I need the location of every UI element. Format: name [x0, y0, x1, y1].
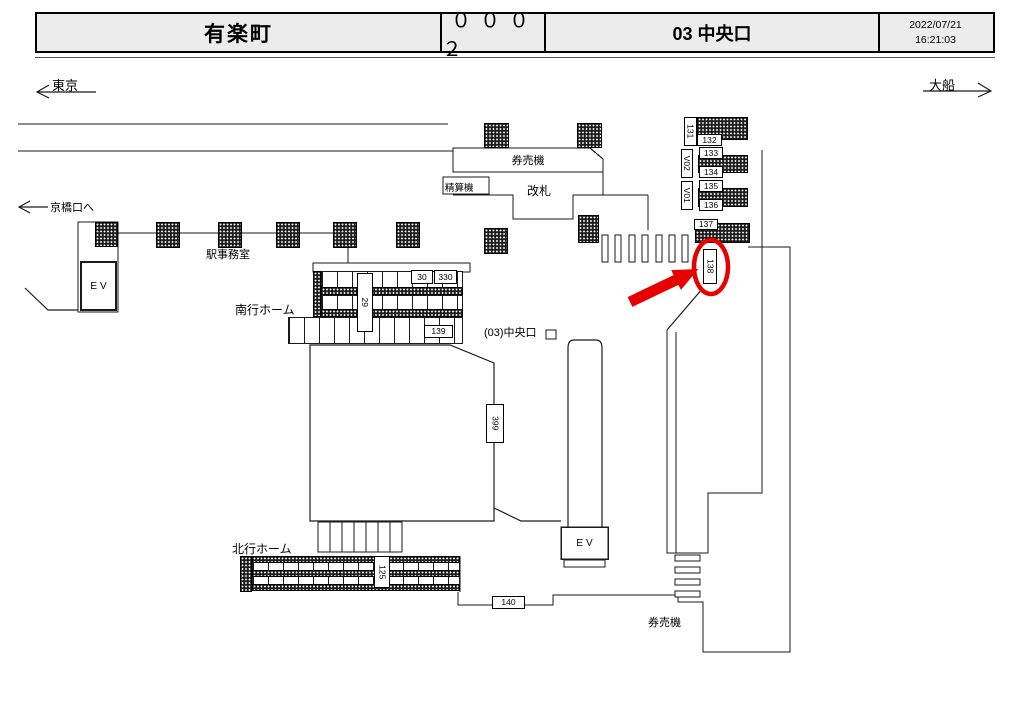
highlight-annotation [0, 0, 1024, 724]
station-map-screen: 有楽町 ０００２ 03 中央口 2022/07/21 16:21:03 東京 大… [0, 0, 1024, 724]
highlight-circle-icon [694, 240, 728, 294]
highlight-arrow-icon [628, 269, 699, 307]
